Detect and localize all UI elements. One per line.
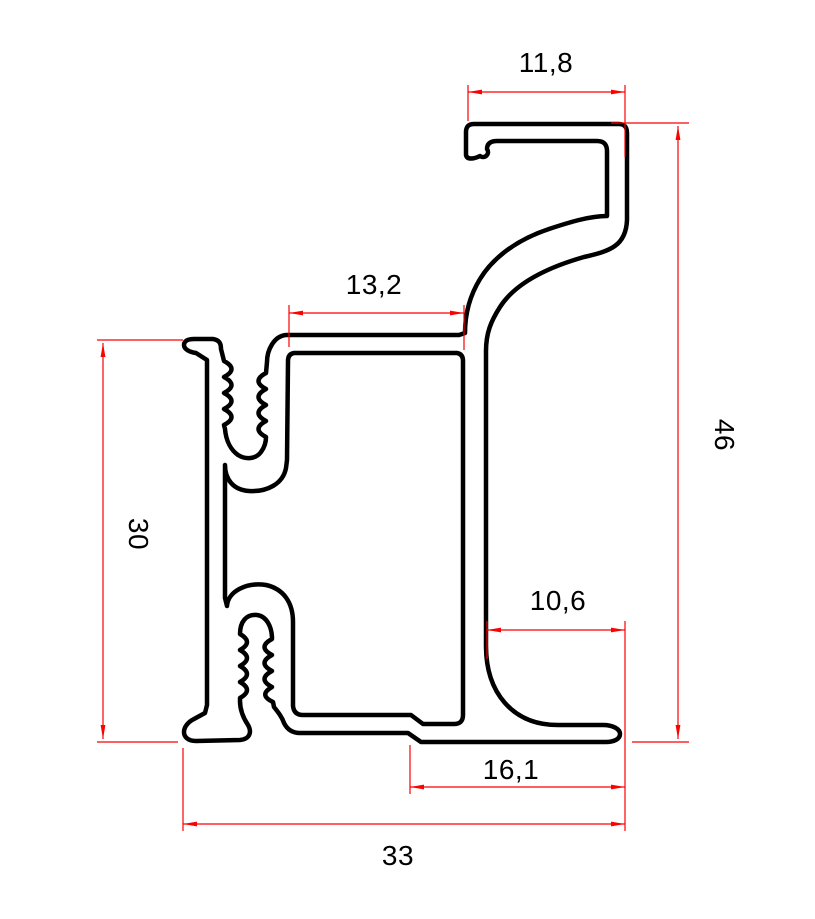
dimension-label-bottom-flange-width: 16,1: [483, 756, 540, 784]
profile-outline: [184, 124, 627, 742]
dimension-label-overall-width: 33: [382, 842, 414, 870]
dimensions: [97, 85, 689, 831]
dimension-label-web-width: 13,2: [346, 271, 403, 299]
dimension-hook-width: [468, 85, 625, 157]
drawing-canvas: 11,8 13,2 46 30 10,6 16,1 33: [0, 0, 815, 919]
dimension-overall-width: [183, 748, 625, 831]
dimension-label-overall-height: 46: [710, 419, 738, 451]
dimension-overall-height: [611, 123, 689, 742]
dimension-label-left-height: 30: [124, 518, 152, 550]
dimension-label-hook-width: 11,8: [519, 49, 573, 77]
dimension-label-bottom-inner-width: 10,6: [530, 587, 587, 615]
dimension-web-width: [289, 305, 464, 350]
profile-drawing-svg: [0, 0, 815, 919]
profile-geometry: [184, 124, 627, 742]
